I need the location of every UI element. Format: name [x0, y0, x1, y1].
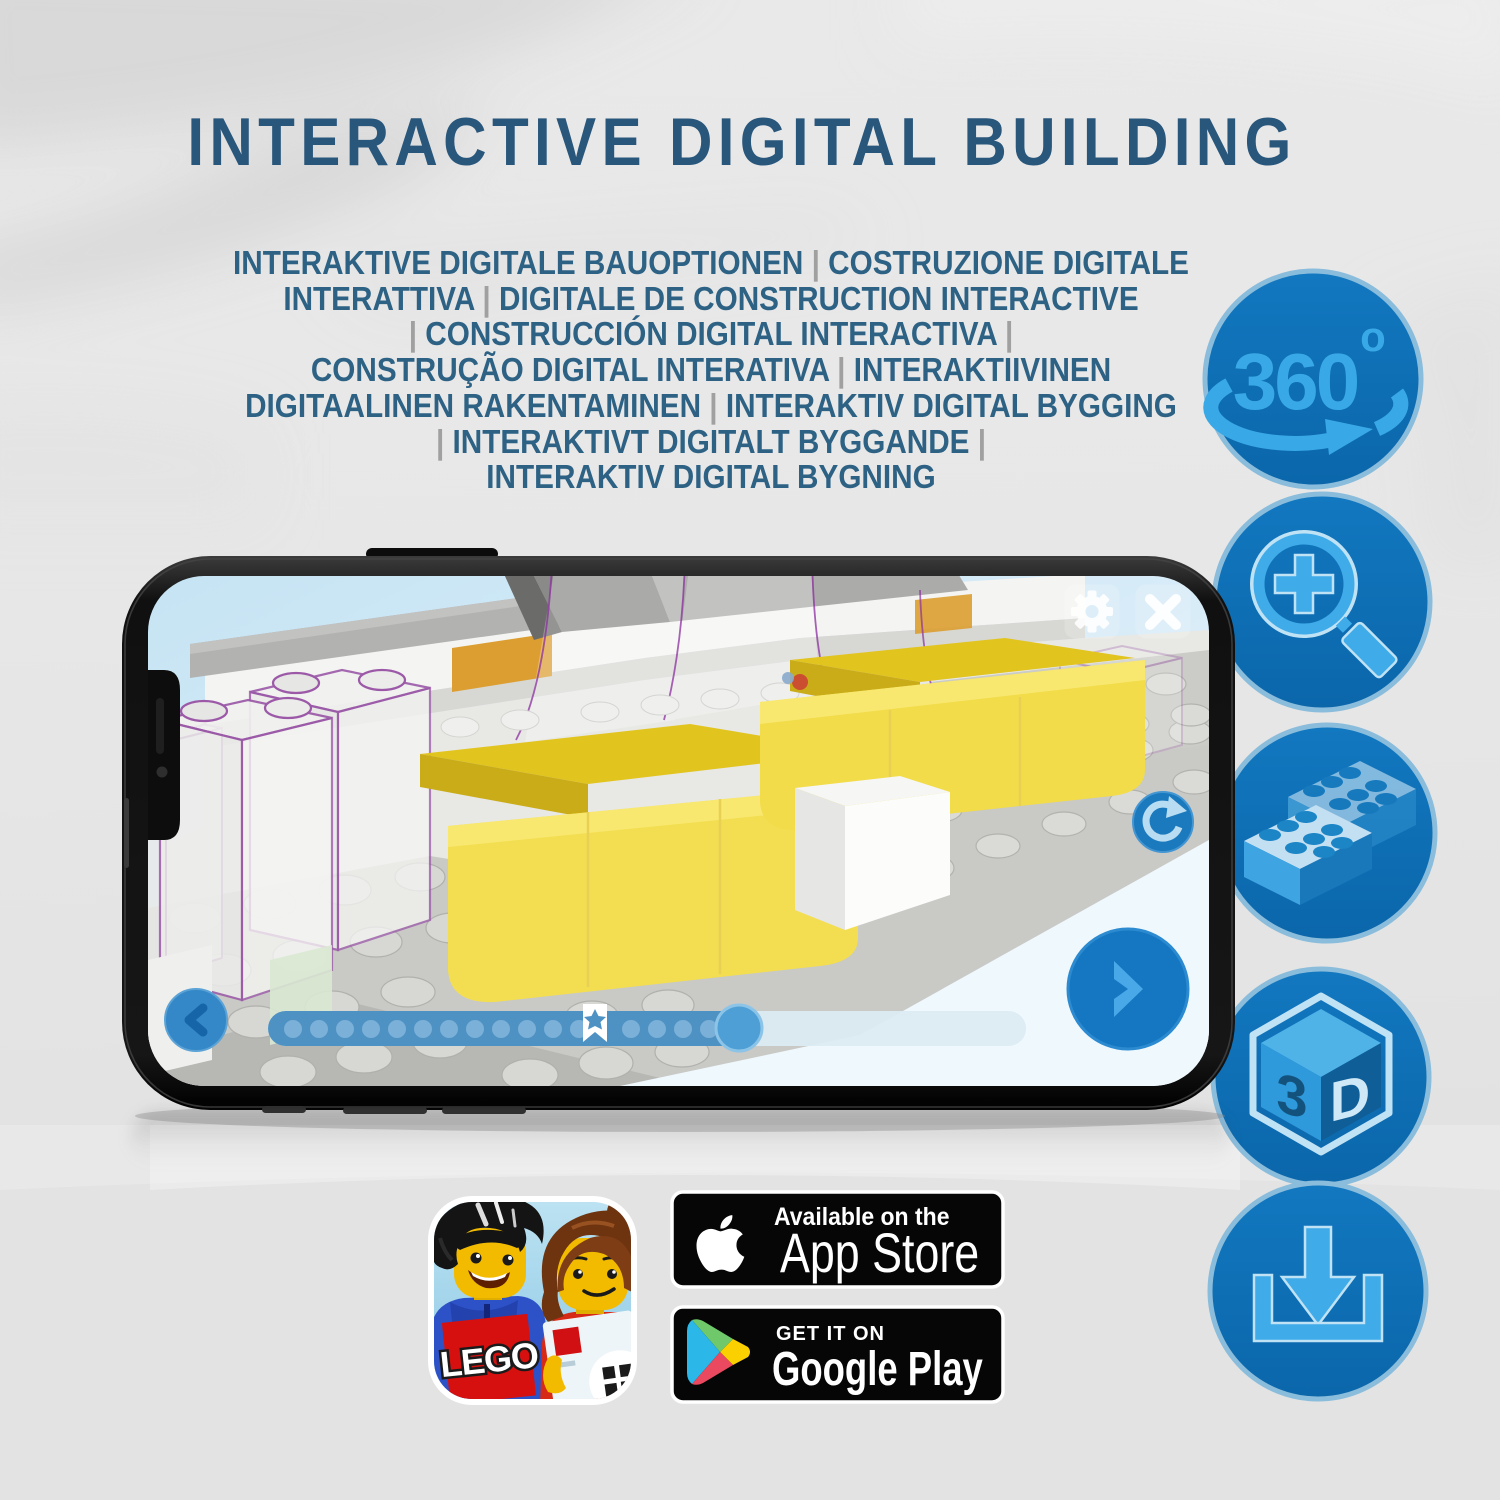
svg-text:360: 360 — [1233, 337, 1358, 426]
svg-text:D: D — [1330, 1063, 1370, 1135]
svg-text:Google Play: Google Play — [772, 1342, 983, 1396]
svg-text:o: o — [1360, 313, 1386, 360]
svg-text:App Store: App Store — [780, 1221, 979, 1284]
svg-text:3: 3 — [1276, 1062, 1307, 1132]
